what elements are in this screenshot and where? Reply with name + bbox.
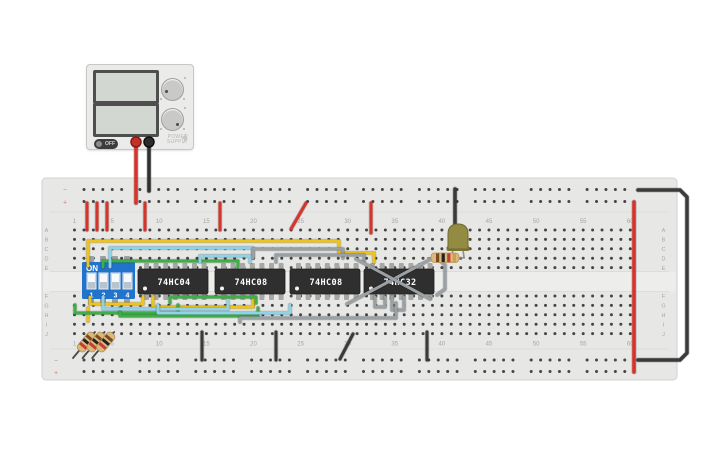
power-supply[interactable]: OFF POWER SUPPLY: [86, 64, 194, 150]
cyan-wire-a[interactable]: [110, 248, 253, 267]
row-label: B: [662, 238, 666, 244]
green-wire-c[interactable]: [75, 305, 178, 313]
resistor-diagonal-3[interactable]: [92, 331, 116, 358]
power-toggle[interactable]: OFF: [94, 139, 118, 149]
resistor-diagonal-1[interactable]: [73, 331, 97, 358]
column-label: 15: [203, 342, 210, 348]
gray-wire-d[interactable]: [356, 259, 430, 299]
row-label: C: [662, 247, 666, 253]
column-label: 5: [111, 219, 115, 225]
current-display: [93, 103, 159, 137]
yellow-wire-a[interactable]: [88, 241, 374, 266]
column-label: 40: [439, 342, 446, 348]
column-label: 5: [111, 342, 115, 348]
column-label: 10: [156, 342, 163, 348]
column-label: 45: [486, 342, 493, 348]
green-wire-b[interactable]: [170, 297, 256, 303]
red-jumper-f[interactable]: [291, 203, 306, 229]
row-label: I: [663, 322, 665, 328]
yellow-led[interactable]: [447, 224, 470, 258]
ic-label: 74HC08: [309, 278, 342, 288]
column-label: 35: [391, 342, 398, 348]
cyan-wire-b[interactable]: [200, 256, 250, 262]
cyan-wire-d[interactable]: [158, 305, 290, 313]
row-label: D: [662, 256, 666, 262]
column-label: 45: [486, 219, 493, 225]
rail-plus-label: +: [63, 200, 67, 207]
dip-switch[interactable]: ON1234: [82, 256, 135, 305]
ic-label: 74HC08: [234, 278, 267, 288]
gray-wire-g[interactable]: [240, 303, 396, 322]
column-label: 60: [627, 219, 634, 225]
ic-label: 74HC04: [157, 278, 190, 288]
dip-pin-label: 3: [114, 293, 118, 300]
black-jumper-c[interactable]: [340, 334, 353, 359]
row-label: J: [662, 332, 665, 338]
column-label: 20: [250, 342, 257, 348]
rail-minus-label: −: [63, 187, 67, 194]
rail-minus-label: −: [54, 358, 58, 365]
dip-pin-label: 4: [126, 293, 130, 300]
column-label: 40: [439, 219, 446, 225]
toggle-off-label: OFF: [105, 141, 115, 147]
row-label: G: [661, 304, 665, 310]
column-label: 30: [344, 342, 351, 348]
voltage-display: [93, 70, 159, 104]
ic-74hc32[interactable]: 74HC32: [364, 263, 434, 300]
green-wire-a[interactable]: [103, 261, 238, 267]
breadboard[interactable]: 1155101015152020252530303535404045455050…: [42, 178, 677, 380]
column-label: 25: [297, 342, 304, 348]
green-wire-d[interactable]: [120, 308, 258, 316]
power-supply-label: POWER SUPPLY: [167, 135, 188, 145]
row-label: D: [45, 256, 49, 262]
column-label: 55: [580, 219, 587, 225]
cyan-wire-c[interactable]: [103, 297, 228, 309]
row-label: G: [44, 304, 48, 310]
breadboard-labels: 1155101015152020252530303535404045455050…: [44, 187, 665, 378]
column-label: 50: [533, 219, 540, 225]
row-label: H: [662, 313, 666, 319]
column-label: 30: [344, 219, 351, 225]
row-label: F: [662, 294, 666, 300]
column-label: 55: [580, 342, 587, 348]
ic-74hc08[interactable]: 74HC08: [215, 263, 285, 300]
column-label: 50: [533, 342, 540, 348]
column-label: 60: [627, 342, 634, 348]
voltage-knob[interactable]: [161, 78, 184, 101]
gray-wire-h[interactable]: [437, 258, 445, 295]
gray-wire-e[interactable]: [375, 297, 385, 307]
dip-slider-1[interactable]: [87, 273, 96, 289]
row-label: B: [45, 238, 49, 244]
dip-pin-label: 2: [102, 293, 106, 300]
gray-wire-b[interactable]: [276, 255, 364, 262]
toggle-knob-icon: [96, 141, 102, 147]
gray-wire-f[interactable]: [392, 297, 404, 310]
yellow-wire-c[interactable]: [153, 297, 253, 307]
black-rail-link[interactable]: [638, 190, 687, 360]
yellow-wire-b[interactable]: [90, 297, 143, 304]
column-label: 15: [203, 219, 210, 225]
column-label: 10: [156, 219, 163, 225]
resistor-horizontal[interactable]: [427, 253, 465, 263]
row-label: F: [45, 294, 49, 300]
column-label: 25: [297, 219, 304, 225]
dip-pin-label: 1: [90, 293, 94, 300]
resistor-diagonal-2[interactable]: [83, 331, 107, 358]
ic-label: 74HC32: [383, 278, 416, 288]
ic-74hc08[interactable]: 74HC08: [290, 263, 360, 300]
gray-wire-a[interactable]: [253, 249, 343, 258]
column-label: 1: [73, 219, 77, 225]
row-label: J: [45, 332, 48, 338]
column-label: 35: [391, 219, 398, 225]
dip-slider-4[interactable]: [123, 273, 132, 289]
row-label: I: [46, 322, 48, 328]
ic-74hc04[interactable]: 74HC04: [138, 263, 208, 300]
row-label: H: [45, 313, 49, 319]
rail-plus-label: +: [54, 370, 58, 377]
dip-on-label: ON: [86, 264, 98, 273]
breadboard-holes[interactable]: [73, 188, 632, 373]
row-label: A: [45, 228, 49, 234]
circuit-canvas[interactable]: OFF POWER SUPPLY 11551010151520202525303…: [0, 0, 725, 453]
lightning-icon: [181, 133, 189, 145]
row-label: E: [662, 266, 666, 272]
current-knob[interactable]: [161, 108, 184, 131]
column-label: 20: [250, 219, 257, 225]
row-label: A: [662, 228, 666, 234]
row-label: C: [45, 247, 49, 253]
dip-slider-3[interactable]: [111, 273, 120, 289]
column-label: 1: [73, 342, 77, 348]
dip-slider-2[interactable]: [99, 273, 108, 289]
row-label: E: [45, 266, 49, 272]
gray-wire-c[interactable]: [347, 258, 433, 304]
